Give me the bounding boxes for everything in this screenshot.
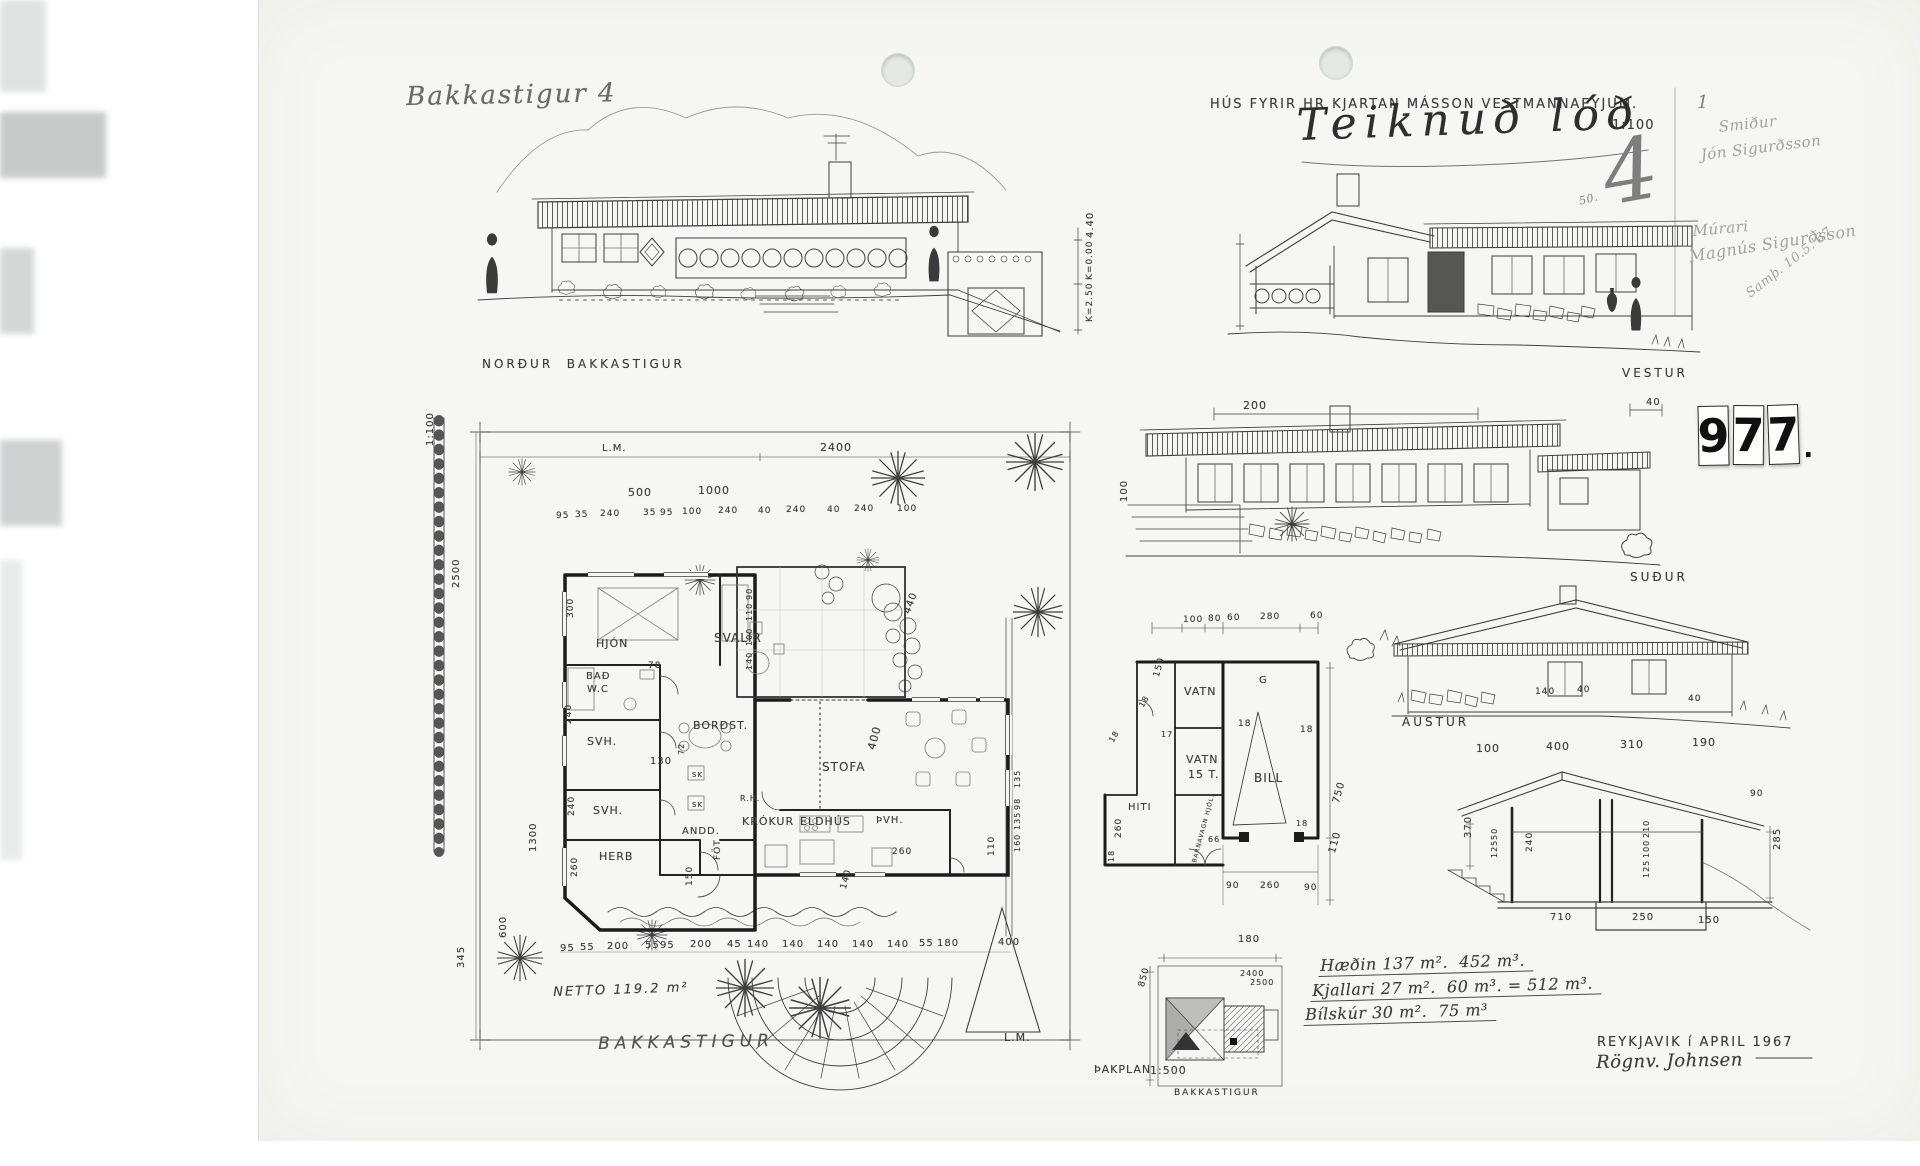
- dimension-label: 140: [887, 940, 909, 950]
- dimension-label: 140: [817, 940, 839, 950]
- dimension-label: 140: [746, 652, 754, 670]
- dimension-label: 2500: [1250, 979, 1274, 987]
- archive-period: .: [1803, 434, 1813, 464]
- dimension-label: 240: [786, 506, 806, 515]
- dimension-label: 260: [1260, 882, 1280, 891]
- lot-mark-top: L.M.: [602, 444, 627, 454]
- dimension-label: 345: [457, 946, 467, 968]
- dimension-label: 150: [1698, 916, 1720, 926]
- dimension-label: 95: [560, 944, 575, 954]
- dimension-label: 1300: [529, 823, 539, 852]
- south-elevation-drawing: [1126, 404, 1662, 565]
- dimension-label: 55: [580, 943, 595, 953]
- dimension-label: K=0.00: [1086, 241, 1095, 280]
- room-label: ELDHÚS: [800, 816, 851, 827]
- north-elevation-drawing: [478, 107, 1082, 336]
- dimension-label: 66: [1208, 836, 1220, 844]
- dimension-label: 240: [854, 505, 874, 514]
- dimension-label: 72: [678, 743, 686, 755]
- north-elevation-label: NORÐUR BAKKASTIGUR: [482, 358, 685, 370]
- archive-digit: 9: [1697, 405, 1729, 466]
- room-label: W.C: [587, 685, 609, 695]
- lot-mark-bottom: L.M.: [1004, 1032, 1031, 1043]
- dimension-label: 80: [1208, 615, 1221, 624]
- dimension-label: K=2.50: [1086, 283, 1095, 322]
- dimension-label: 35: [575, 511, 588, 520]
- architect-signature: Rögnv. Johnsen: [1596, 1051, 1743, 1072]
- room-label: ANDD.: [682, 827, 720, 837]
- dimension-label: 200: [607, 942, 629, 952]
- dimension-label: 125: [1491, 840, 1499, 858]
- dimension-label: 240: [600, 510, 620, 519]
- room-label: BILL: [1254, 772, 1283, 784]
- dimension-label: 110: [746, 603, 754, 621]
- dimension-label: 710: [1550, 913, 1572, 923]
- dimension-label: 18: [1300, 726, 1313, 735]
- archive-digit: 7: [1767, 404, 1800, 465]
- dimension-label: 140: [852, 940, 874, 950]
- dimension-label: 17: [1161, 731, 1173, 739]
- dimension-label: 40: [1577, 686, 1590, 695]
- room-label: HJÓN: [596, 638, 628, 649]
- dimension-label: 370: [1464, 816, 1474, 838]
- dimension-label: 18: [1108, 850, 1116, 862]
- punch-hole: [1319, 46, 1353, 80]
- dimension-label: 40: [827, 506, 840, 515]
- dimension-label: 190: [1692, 737, 1716, 748]
- dimension-label: 1:100: [426, 412, 436, 446]
- floor-plan-drawing: [560, 567, 1012, 952]
- dimension-label: 2400: [1240, 970, 1264, 978]
- site-plan-drawing: [434, 418, 1080, 1090]
- dimension-label: 100: [1643, 840, 1651, 858]
- room-label: VATN: [1184, 686, 1216, 697]
- room-label: SVALIR: [714, 632, 762, 644]
- dimension-label: 100: [746, 628, 754, 646]
- dimension-label: 98: [1014, 798, 1022, 810]
- roof-plan-street-label: BAKKASTIGUR: [1174, 1089, 1260, 1098]
- dimension-label: 140: [747, 940, 769, 950]
- dimension-label: 100: [1476, 743, 1500, 754]
- dimension-label: 55: [919, 939, 934, 949]
- room-label: KRÓKUR: [742, 816, 794, 827]
- scale-ruler: [434, 418, 444, 852]
- room-label: BORÐST.: [693, 720, 748, 731]
- roof-plan-scale: 1:500: [1150, 1065, 1187, 1076]
- dimension-label: 100: [1183, 616, 1203, 625]
- dimension-label: 95: [660, 941, 675, 951]
- dimension-label: 45: [727, 940, 742, 950]
- handwritten-address: Bakkastigur 4: [406, 80, 617, 110]
- margin-mark: 1: [1697, 94, 1709, 112]
- east-elevation-drawing: [1392, 586, 1790, 728]
- room-label: ÞVH.: [876, 816, 903, 826]
- south-elevation-label: SUÐUR: [1630, 571, 1688, 583]
- dimension-label: 100: [682, 508, 702, 517]
- archive-number-plate: 9 7 7 .: [1697, 404, 1813, 466]
- room-label: SK: [692, 802, 703, 809]
- dimension-label: 140: [1535, 688, 1555, 697]
- room-label: SVH.: [587, 736, 617, 747]
- dimension-label: 35: [643, 509, 656, 518]
- dimension-label: 310: [1620, 739, 1644, 750]
- handwritten-note: Teiknuð lóð: [1296, 92, 1642, 148]
- dimension-label: 260: [571, 857, 580, 877]
- dimension-label: 135: [1014, 770, 1022, 788]
- room-label: HERB: [599, 851, 633, 862]
- dimension-label: 110: [988, 836, 997, 856]
- dimension-label: 60: [1310, 612, 1323, 621]
- dimension-label: 200: [1243, 400, 1267, 411]
- dimension-label: 18: [1296, 820, 1308, 828]
- dimension-label: 260: [892, 848, 912, 857]
- dimension-label: 50: [1491, 828, 1499, 840]
- dimension-label: 140: [782, 940, 804, 950]
- archive-digit: 7: [1733, 405, 1765, 465]
- dimension-label: 300: [567, 598, 576, 618]
- dimension-label: 135: [1014, 812, 1022, 830]
- dimension-label: 78: [648, 662, 661, 671]
- dimension-label: 18: [1238, 720, 1251, 729]
- dimension-label: 95: [660, 509, 673, 518]
- room-label: FÖT: [714, 839, 723, 860]
- garage-plan-drawing: [1105, 622, 1400, 905]
- scanned-drawing-page: { "header": { "address": "Bakkastigur 4"…: [0, 0, 1920, 1166]
- room-label: BAÐ: [586, 672, 610, 682]
- dimension-label: 100: [1120, 480, 1130, 502]
- street-name-label: BAKKASTIGUR: [598, 1033, 774, 1053]
- punch-hole: [881, 53, 915, 87]
- dimension-label: 100: [897, 505, 917, 514]
- dimension-label: 125: [1643, 860, 1651, 878]
- dimension-label: 180: [1238, 935, 1260, 945]
- place-date-label: REYKJAVIK í APRIL 1967: [1597, 1036, 1794, 1049]
- dimension-label: 500: [628, 487, 652, 498]
- dimension-label: 2400: [820, 442, 852, 453]
- dimension-label: 150: [686, 866, 695, 886]
- dimension-label: 55: [645, 941, 660, 951]
- room-label: SK: [692, 772, 703, 779]
- room-label: SVH.: [593, 805, 623, 816]
- dimension-label: 240: [1526, 832, 1535, 852]
- roof-plan-label: ÞAKPLAN: [1094, 1064, 1151, 1075]
- dimension-label: 600: [499, 916, 509, 938]
- dimension-label: 285: [1773, 828, 1783, 850]
- dimension-label: 90: [1304, 884, 1317, 893]
- dimension-label: 250: [1632, 913, 1654, 923]
- dimension-label: 160: [1014, 834, 1022, 852]
- west-elevation-label: VESTUR: [1622, 367, 1688, 379]
- dimension-label: 180: [937, 939, 959, 949]
- room-label: R.H.: [740, 795, 760, 803]
- dimension-label: 130: [650, 757, 672, 767]
- dimension-label: 95: [556, 512, 569, 521]
- dimension-label: 40: [758, 507, 771, 516]
- dimension-label: 240: [565, 704, 574, 724]
- dimension-label: 4.40: [1086, 212, 1096, 238]
- dimension-label: 240: [718, 507, 738, 516]
- dimension-label: 90: [1226, 882, 1239, 891]
- dimension-label: 280: [1260, 613, 1280, 622]
- dimension-label: 2500: [452, 559, 462, 588]
- dimension-label: 260: [1115, 818, 1124, 838]
- dimension-label: 240: [568, 796, 577, 816]
- dimension-label: 40: [1688, 695, 1701, 704]
- dimension-label: 400: [1546, 741, 1570, 752]
- dimension-label: 60: [1227, 614, 1240, 623]
- dimension-label: 400: [998, 938, 1020, 948]
- room-label: HITI: [1128, 803, 1152, 813]
- dimension-label: 200: [690, 940, 712, 950]
- dimension-label: 90: [746, 588, 754, 600]
- dimension-label: 1000: [698, 485, 730, 496]
- room-label: STOFA: [822, 761, 865, 773]
- dimension-label: 40: [1646, 398, 1661, 408]
- dimension-label: 210: [1643, 820, 1651, 838]
- room-label: 15 T.: [1188, 769, 1219, 780]
- dimension-label: 90: [1750, 790, 1763, 799]
- east-elevation-label: AUSTUR: [1402, 716, 1469, 728]
- room-label: G: [1259, 676, 1268, 686]
- room-label: VATN: [1186, 754, 1218, 765]
